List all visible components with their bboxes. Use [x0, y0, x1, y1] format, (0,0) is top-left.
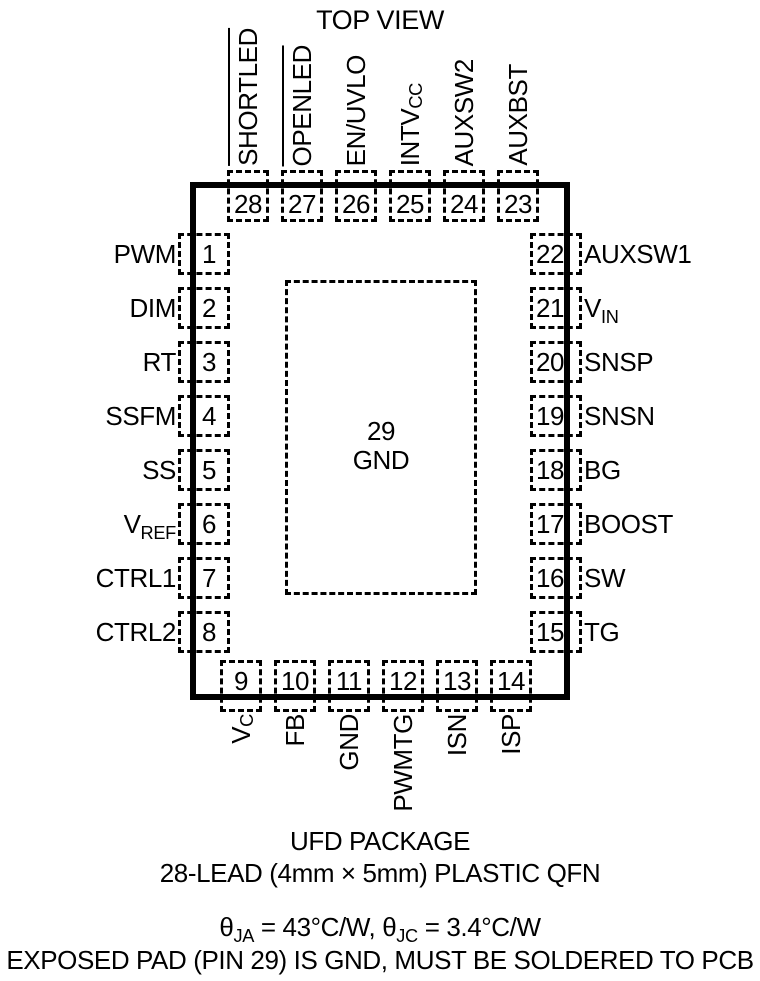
pin-pad-26: 26 — [335, 170, 377, 222]
pin-number: 28 — [234, 191, 262, 217]
theta-jc-value: = 3.4°C/W — [418, 912, 541, 942]
pin-label-intvcc: INTVCC — [394, 83, 426, 166]
theta-jc-sub: JC — [396, 926, 418, 946]
pin-label-text: EN/UVLO — [341, 55, 371, 166]
pin-label-en-uvlo: EN/UVLO — [340, 55, 372, 166]
pin-label-ctrl1: CTRL1 — [0, 561, 176, 595]
pin-label-isp: ISP — [495, 714, 527, 755]
pin-label-text: TG — [584, 617, 619, 647]
pin-pad-9: 9 — [220, 660, 262, 712]
pin-pad-6: 6 — [178, 503, 230, 545]
pin-number: 10 — [281, 668, 309, 694]
pin-number: 17 — [536, 511, 564, 537]
pin-number: 26 — [342, 191, 370, 217]
pin-number: 27 — [288, 191, 316, 217]
pin-label-auxbst: AUXBST — [502, 64, 534, 166]
pin-label-openled: OPENLED — [286, 45, 318, 166]
pin-label-text: FB — [280, 714, 310, 746]
pin-pad-8: 8 — [178, 611, 230, 653]
pin-number: 12 — [389, 668, 417, 694]
pin-pad-28: 28 — [227, 170, 269, 222]
pin-label-fb: FB — [279, 714, 311, 746]
pin-label-text: SSFM — [105, 401, 176, 431]
pin-label-shortled: SHORTLED — [232, 28, 264, 166]
pin-label-text: OPENLED — [287, 45, 317, 166]
pin-label-text: AUXBST — [503, 64, 533, 166]
pin-label-text: V — [584, 293, 601, 323]
pin-number: 16 — [536, 565, 564, 591]
pin-label-text: BOOST — [584, 509, 673, 539]
pin-label-auxsw1: AUXSW1 — [584, 237, 691, 271]
pin-pad-11: 11 — [328, 660, 370, 712]
pin-number: 11 — [336, 668, 362, 694]
pin-label-tg: TG — [584, 615, 619, 649]
pin-label-text: GND — [334, 714, 364, 771]
theta-symbol: θ — [382, 912, 396, 942]
pin-label-text: CTRL2 — [96, 617, 176, 647]
pin-label-text: SNSP — [584, 347, 653, 377]
pin-label-text: AUXSW2 — [449, 59, 479, 166]
pin-label-vin: VIN — [584, 291, 619, 325]
pin-label-snsp: SNSP — [584, 345, 653, 379]
pin-pad-2: 2 — [178, 287, 230, 329]
pin-number: 1 — [202, 241, 216, 267]
pin-label-ssfm: SSFM — [0, 399, 176, 433]
pin-label-text: DIM — [130, 293, 176, 323]
pin-pad-3: 3 — [178, 341, 230, 383]
pin-pad-27: 27 — [281, 170, 323, 222]
pin-label-bg: BG — [584, 453, 621, 487]
pin-pad-10: 10 — [274, 660, 316, 712]
pin-number: 3 — [202, 349, 216, 375]
pin-number: 21 — [536, 295, 564, 321]
pin-label-ctrl2: CTRL2 — [0, 615, 176, 649]
pin-label-sub: IN — [601, 307, 619, 327]
pin-label-text: RT — [143, 347, 176, 377]
pin-number: 23 — [504, 191, 532, 217]
pin-number: 8 — [202, 619, 216, 645]
pin-label-text: PWMTG — [388, 714, 418, 812]
exposed-pad-note: EXPOSED PAD (PIN 29) IS GND, MUST BE SOL… — [0, 945, 760, 975]
pin-label-dim: DIM — [0, 291, 176, 325]
exposed-pad-number: 29 — [367, 417, 395, 446]
pin-number: 13 — [443, 668, 471, 694]
pin-label-sw: SW — [584, 561, 625, 595]
pin-label-text: PWM — [114, 239, 176, 269]
pin-label-pwmtg: PWMTG — [387, 714, 419, 812]
package-description: 28-LEAD (4mm × 5mm) PLASTIC QFN — [0, 858, 760, 888]
pin-pad-16: 16 — [530, 557, 582, 599]
overline-bar: SHORTLED — [228, 28, 263, 166]
theta-ja-value: = 43°C/W, — [254, 912, 382, 942]
pin-label-snsn: SNSN — [584, 399, 655, 433]
pin-pad-25: 25 — [389, 170, 431, 222]
pin-number: 20 — [536, 349, 564, 375]
pin-pad-18: 18 — [530, 449, 582, 491]
pin-pad-7: 7 — [178, 557, 230, 599]
pin-label-auxsw2: AUXSW2 — [448, 59, 480, 166]
pin-label-text: INTV — [395, 108, 425, 166]
pin-label-text: ISN — [442, 714, 472, 756]
pin-label-isn: ISN — [441, 714, 473, 756]
pin-pad-13: 13 — [436, 660, 478, 712]
pin-pad-12: 12 — [382, 660, 424, 712]
package-name: UFD PACKAGE — [0, 826, 760, 856]
pin-number: 9 — [234, 668, 248, 694]
pin-label-gnd: GND — [333, 714, 365, 771]
pin-number: 6 — [202, 511, 216, 537]
pin-number: 15 — [536, 619, 564, 645]
pin-label-text: SNSN — [584, 401, 655, 431]
pin-label-text: V — [124, 509, 141, 539]
pin-number: 18 — [536, 457, 564, 483]
pin-pad-4: 4 — [178, 395, 230, 437]
pin-pad-23: 23 — [497, 170, 539, 222]
pin-number: 19 — [536, 403, 564, 429]
pin-pad-22: 22 — [530, 233, 582, 275]
pin-pad-20: 20 — [530, 341, 582, 383]
package-outline: 28 27 26 25 24 23 1 2 3 4 5 6 7 8 22 21 … — [190, 182, 570, 700]
pin-number: 22 — [536, 241, 564, 267]
pin-pad-24: 24 — [443, 170, 485, 222]
pin-pad-17: 17 — [530, 503, 582, 545]
pin-label-sub: C — [237, 714, 257, 727]
pin-pad-5: 5 — [178, 449, 230, 491]
exposed-pad: 29 GND — [285, 280, 477, 595]
overline-bar: OPENLED — [282, 45, 317, 166]
theta-ja-sub: JA — [233, 926, 254, 946]
theta-symbol: θ — [219, 912, 233, 942]
pin-pad-19: 19 — [530, 395, 582, 437]
pin-number: 25 — [396, 191, 424, 217]
pin-label-rt: RT — [0, 345, 176, 379]
pin-number: 14 — [497, 668, 525, 694]
pin-label-boost: BOOST — [584, 507, 673, 541]
pin-pad-15: 15 — [530, 611, 582, 653]
pin-number: 24 — [450, 191, 478, 217]
pin-label-pwm: PWM — [0, 237, 176, 271]
pin-label-text: BG — [584, 455, 621, 485]
pin-label-text: SHORTLED — [233, 28, 263, 166]
pin-pad-14: 14 — [490, 660, 532, 712]
pin-pad-21: 21 — [530, 287, 582, 329]
pin-label-sub: CC — [406, 83, 426, 109]
pin-label-ss: SS — [0, 453, 176, 487]
pin-label-text: V — [226, 727, 256, 744]
pin-label-text: ISP — [496, 714, 526, 755]
pin-number: 2 — [202, 295, 216, 321]
pinout-diagram: TOP VIEW 28 27 26 25 24 23 1 2 3 4 5 6 7… — [0, 0, 760, 981]
exposed-pad-name: GND — [353, 446, 410, 475]
pin-pad-1: 1 — [178, 233, 230, 275]
pin-label-text: SW — [584, 563, 625, 593]
pin-label-text: CTRL1 — [96, 563, 176, 593]
pin-label-text: SS — [142, 455, 176, 485]
pin-number: 4 — [202, 403, 216, 429]
pin-number: 5 — [202, 457, 216, 483]
pin-label-vc: VC — [225, 714, 257, 744]
pin-label-vref: VREF — [0, 507, 176, 541]
pin-label-sub: REF — [141, 523, 176, 543]
pin-label-text: AUXSW1 — [584, 239, 691, 269]
pin-number: 7 — [202, 565, 216, 591]
